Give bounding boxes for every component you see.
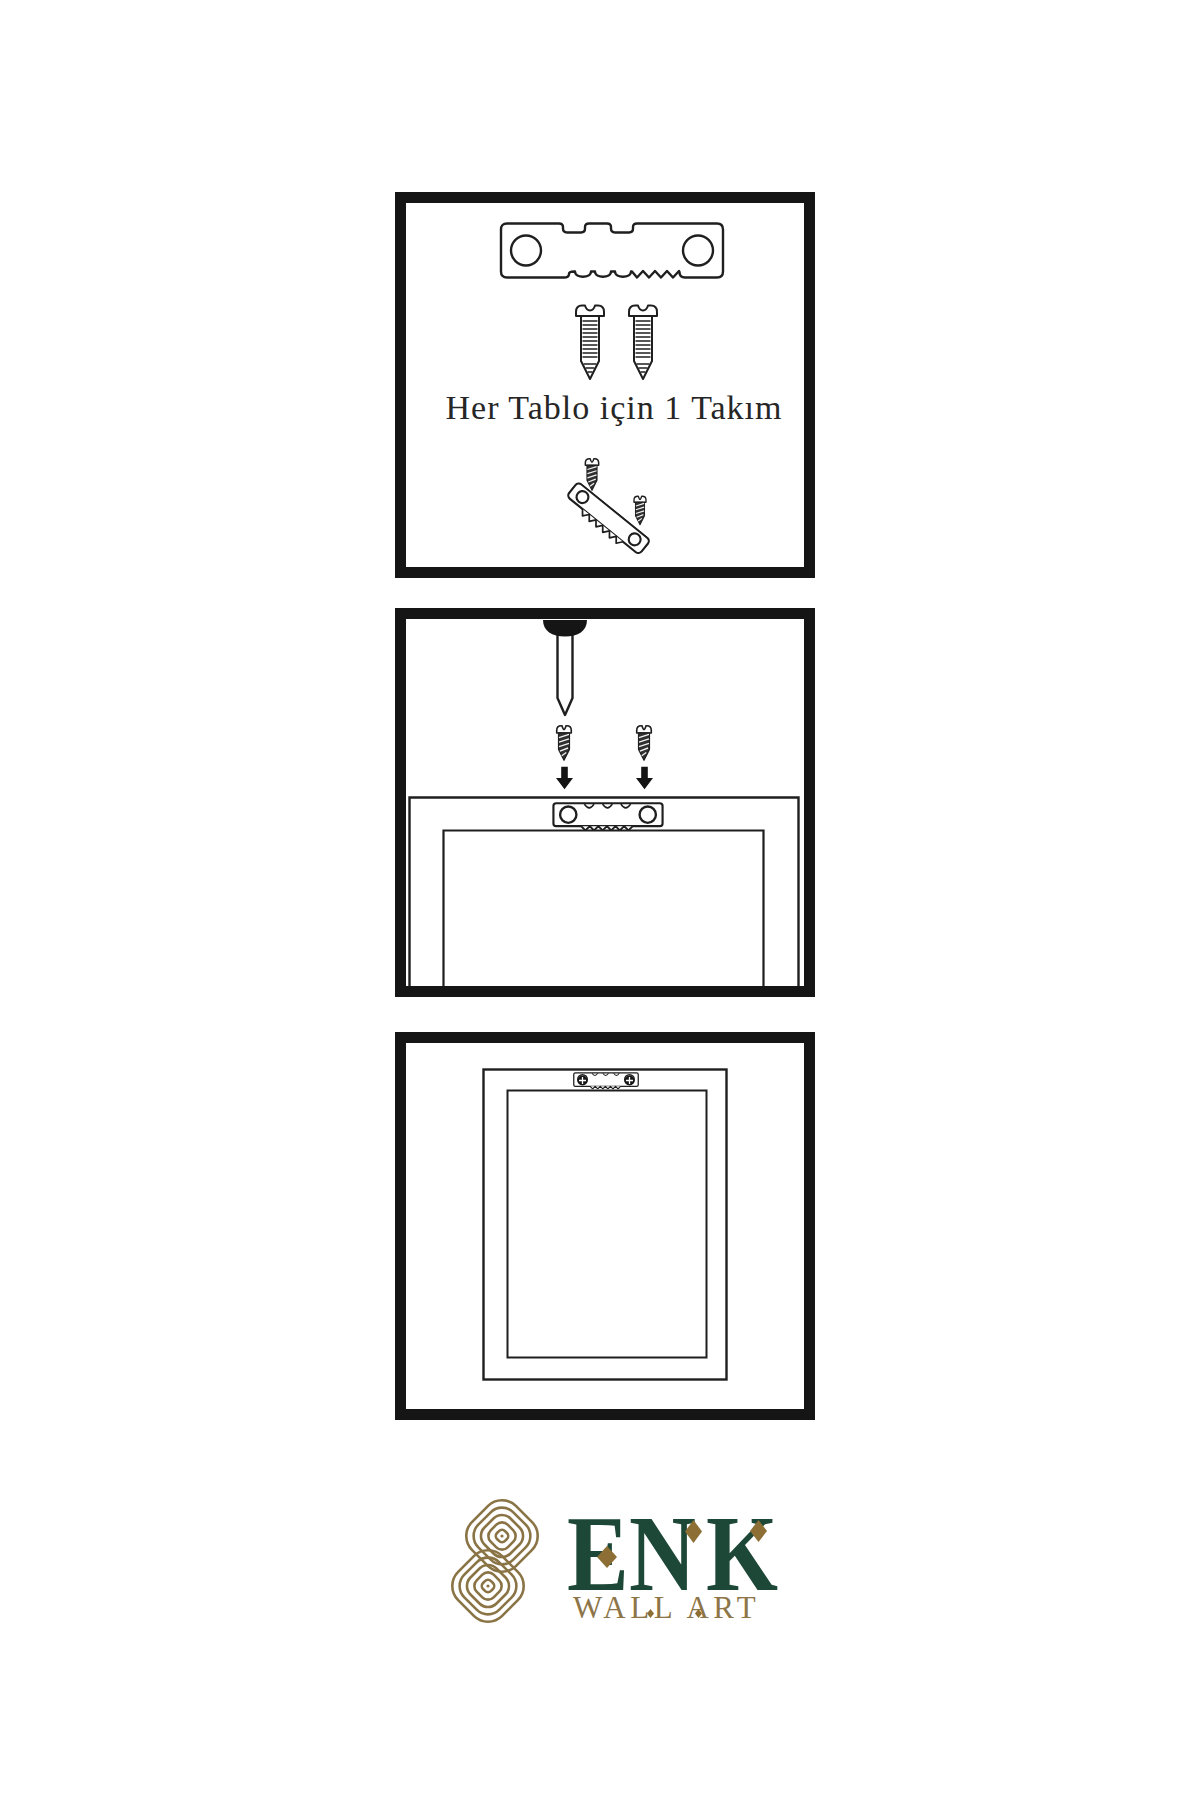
hardware-kit-drawing (406, 203, 804, 567)
screw-icon (629, 306, 657, 380)
dark-screw-icon (634, 496, 646, 525)
down-arrow-icon (636, 767, 653, 790)
knot-logo-icon (436, 1494, 558, 1630)
frame-back-drawing (406, 1043, 804, 1409)
dark-screw-icon (557, 726, 572, 761)
panel-hardware-kit: Her Tablo için 1 Takım (395, 192, 815, 578)
frame-outer-edge (484, 1070, 727, 1380)
down-arrow-icon (556, 767, 573, 790)
screw-icon (576, 306, 604, 380)
dark-screw-icon (585, 459, 598, 491)
wall-nail-icon (543, 620, 587, 715)
dark-screw-icon (637, 726, 652, 761)
phillips-screw-head-icon (625, 1076, 635, 1086)
phillips-screw-head-icon (578, 1076, 588, 1086)
panel-frame-back (395, 1032, 815, 1420)
screw-into-hanger-icon (563, 459, 650, 559)
frame-backing-board (444, 831, 764, 987)
instruction-sheet: { "colors": { "background": "#ffffff", "… (0, 0, 1200, 1800)
sawtooth-hanger-icon (501, 224, 723, 278)
frame-backing-board (508, 1091, 707, 1358)
brand-subtitle: WALL ART (573, 1592, 760, 1623)
mounting-drawing (406, 619, 804, 986)
panel-mount-hanger (395, 608, 815, 997)
sawtooth-hanger-plate-icon (553, 803, 662, 830)
kit-caption: Her Tablo için 1 Takım (415, 389, 813, 427)
